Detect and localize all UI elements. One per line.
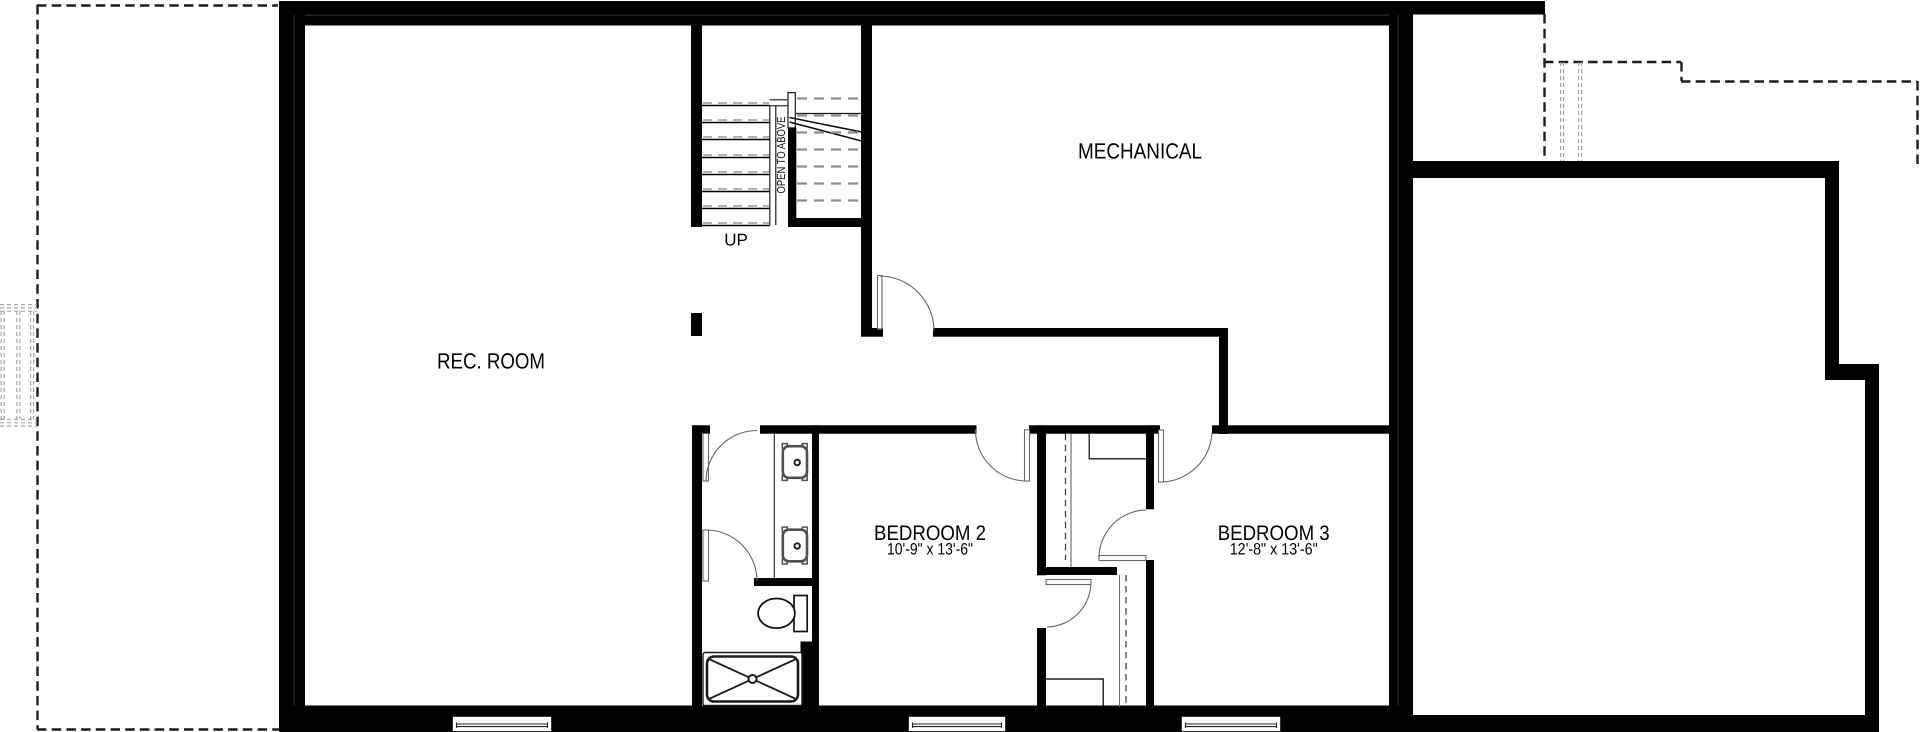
svg-text:REC. ROOM: REC. ROOM bbox=[437, 349, 545, 374]
svg-text:OPEN TO ABOVE: OPEN TO ABOVE bbox=[776, 116, 788, 193]
svg-text:UP: UP bbox=[724, 231, 748, 250]
svg-text:MECHANICAL: MECHANICAL bbox=[1078, 139, 1202, 164]
svg-text:12'-8" x 13'-6": 12'-8" x 13'-6" bbox=[1230, 541, 1318, 559]
svg-text:10'-9" x 13'-6": 10'-9" x 13'-6" bbox=[887, 541, 973, 559]
